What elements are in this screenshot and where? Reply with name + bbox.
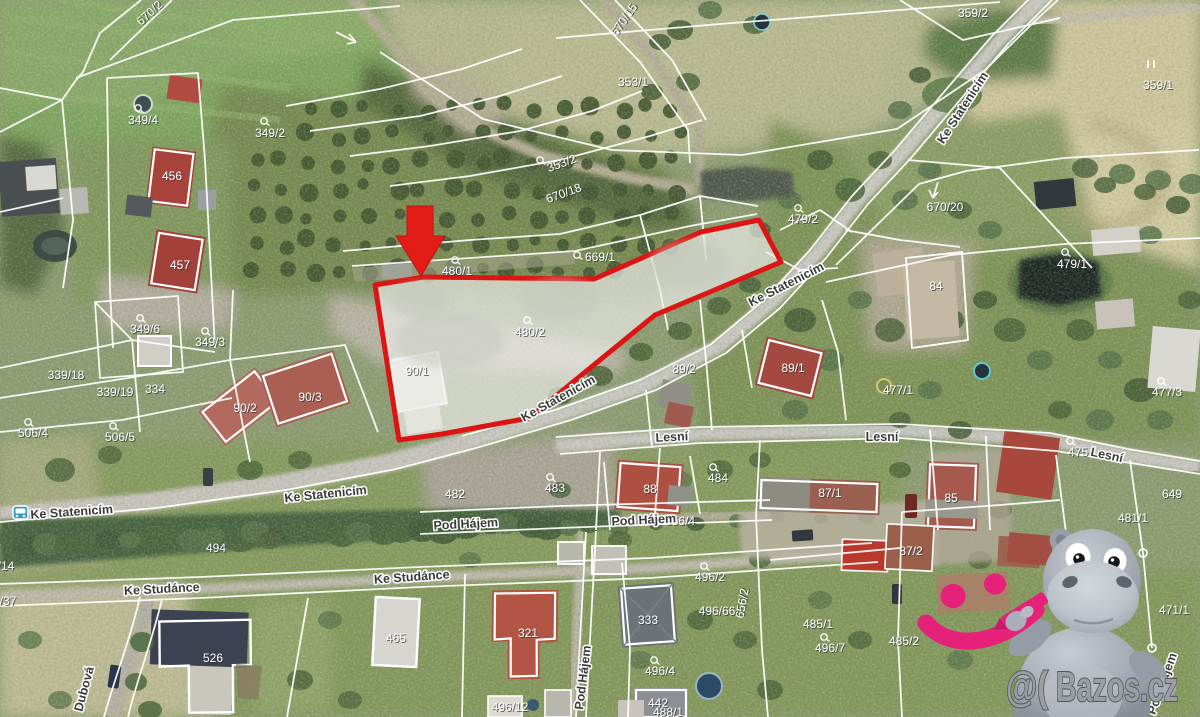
svg-text:442: 442 — [648, 696, 668, 710]
svg-text:359/1: 359/1 — [1143, 78, 1173, 92]
svg-text:506/4: 506/4 — [18, 426, 48, 440]
svg-text:339/18: 339/18 — [48, 368, 85, 382]
svg-text:457: 457 — [170, 258, 190, 272]
svg-text:87/1: 87/1 — [818, 486, 842, 500]
svg-text:349/6: 349/6 — [130, 322, 160, 336]
svg-text:484: 484 — [708, 471, 728, 485]
svg-text:87/2: 87/2 — [899, 544, 923, 558]
svg-text:84: 84 — [929, 279, 943, 293]
svg-text:@(: @( — [1006, 663, 1048, 710]
svg-text:334: 334 — [145, 382, 165, 396]
svg-text:483: 483 — [545, 481, 565, 495]
svg-text:494: 494 — [206, 541, 226, 555]
svg-text:Lesní: Lesní — [866, 430, 899, 444]
svg-text:496/7: 496/7 — [815, 641, 845, 655]
svg-text:90/2: 90/2 — [233, 401, 257, 415]
svg-text:471/1: 471/1 — [1159, 603, 1189, 617]
svg-text:89/2: 89/2 — [672, 362, 696, 376]
svg-text:90/3: 90/3 — [298, 390, 322, 404]
svg-text:90/1: 90/1 — [405, 364, 429, 378]
svg-text:480/1: 480/1 — [442, 264, 472, 278]
svg-text:506/5: 506/5 — [105, 430, 135, 444]
svg-text:496/2: 496/2 — [695, 570, 725, 584]
svg-text:321: 321 — [518, 626, 538, 640]
svg-text:475: 475 — [1068, 445, 1088, 459]
svg-text:485/1: 485/1 — [803, 617, 833, 631]
svg-text:456: 456 — [162, 169, 182, 183]
svg-text:477/3: 477/3 — [1152, 385, 1182, 399]
svg-text:479/2: 479/2 — [788, 212, 818, 226]
svg-text:339/19: 339/19 — [97, 385, 134, 399]
svg-text:333: 333 — [638, 613, 658, 627]
svg-text:89/1: 89/1 — [781, 361, 805, 375]
svg-text:/37: /37 — [0, 594, 17, 608]
svg-text:Bazos.cz: Bazos.cz — [1056, 663, 1178, 710]
svg-text:477/1: 477/1 — [883, 383, 913, 397]
svg-text:496/66: 496/66 — [699, 604, 736, 618]
svg-text:480/2: 480/2 — [515, 325, 545, 339]
svg-text:Lesní: Lesní — [655, 429, 689, 445]
svg-text:349/4: 349/4 — [128, 113, 158, 127]
svg-text:649: 649 — [1162, 487, 1182, 501]
svg-text:526: 526 — [203, 651, 223, 665]
svg-text:359/2: 359/2 — [958, 6, 988, 20]
svg-text:496/4: 496/4 — [645, 664, 675, 678]
svg-text:496/12: 496/12 — [492, 700, 529, 714]
svg-text:349/2: 349/2 — [255, 126, 285, 140]
svg-text:669/1: 669/1 — [585, 250, 615, 264]
svg-text:485/2: 485/2 — [889, 634, 919, 648]
svg-text:670/20: 670/20 — [927, 200, 964, 214]
svg-text:/14: /14 — [0, 559, 15, 573]
svg-text:482: 482 — [445, 487, 465, 501]
svg-text:465: 465 — [386, 631, 406, 645]
svg-text:481/1: 481/1 — [1118, 511, 1148, 525]
svg-text:88: 88 — [643, 482, 657, 496]
svg-text:85: 85 — [944, 491, 958, 505]
svg-text:349/3: 349/3 — [195, 335, 225, 349]
svg-text:353/1: 353/1 — [618, 75, 648, 89]
svg-text:479/1: 479/1 — [1057, 257, 1087, 271]
